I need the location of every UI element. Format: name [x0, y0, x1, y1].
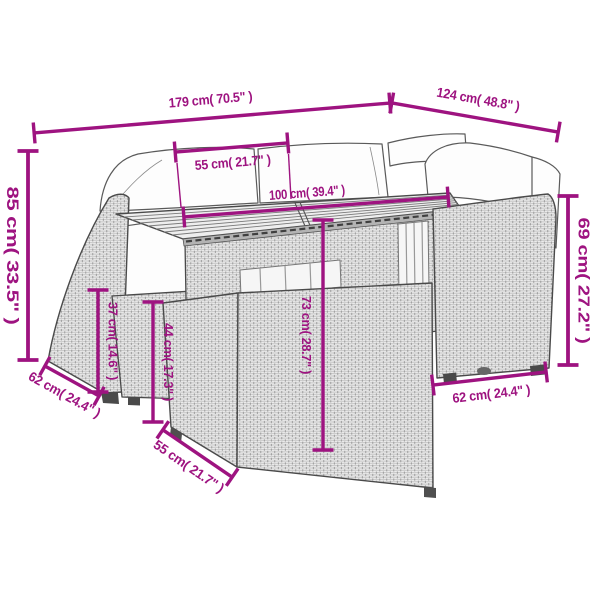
right-armrest: [433, 194, 556, 384]
dimension-label-stool-height: 44 cm( 17.3" ): [161, 323, 176, 401]
dimension-label-table-height: 73 cm( 28.7" ): [299, 296, 314, 374]
product-dimension-image: 179 cm( 70.5" ) 124 cm( 48.8" ) 55 cm( 2…: [0, 0, 600, 600]
dimension-label-back-height-right: 69 cm( 27.2" ): [575, 218, 592, 344]
dimension-label-seat-height: 37 cm( 14.6" ): [106, 302, 121, 380]
right-armrest-foot: [477, 367, 491, 375]
dimension-label-back-height-left: 85 cm( 33.5" ): [3, 187, 21, 325]
left-armrest-foot: [101, 392, 119, 404]
